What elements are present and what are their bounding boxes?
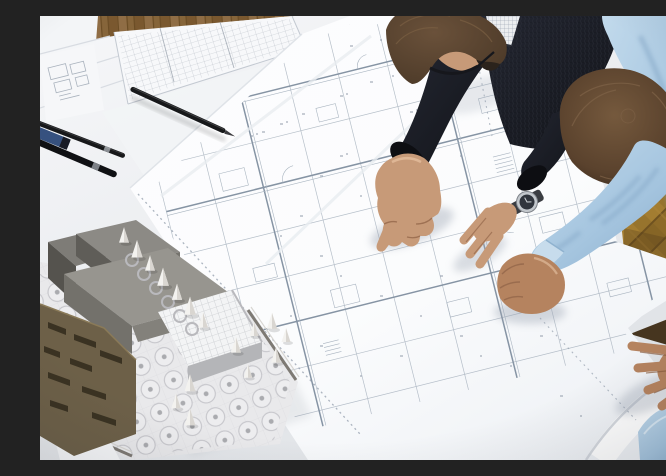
vignette — [40, 16, 666, 460]
scene-canvas — [40, 16, 666, 460]
photo-architects-planning: Two architects leaning over a drafting t… — [40, 16, 666, 460]
